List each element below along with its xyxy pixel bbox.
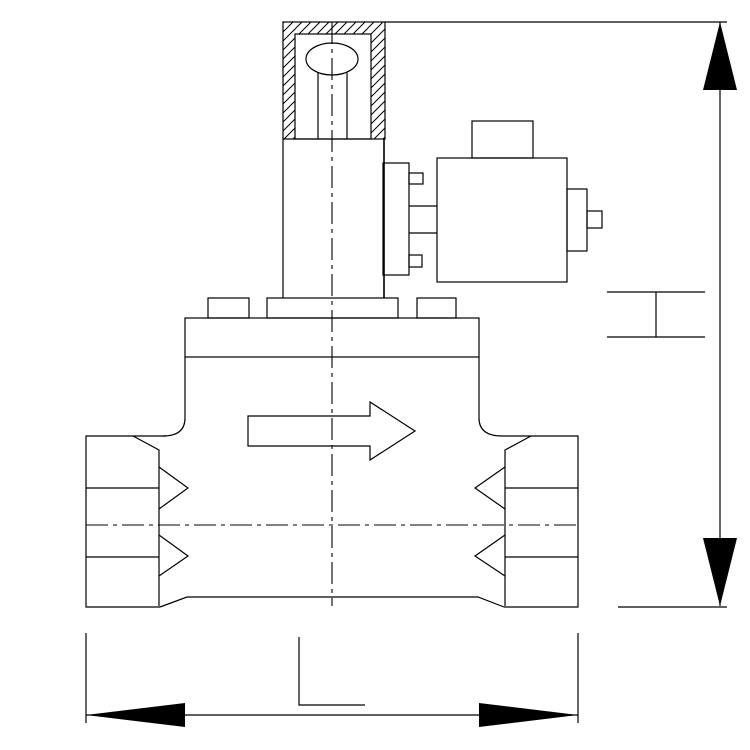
thread-chevron-top (159, 467, 188, 509)
top-gland-hatched-housing (283, 22, 385, 139)
arrowhead-down-icon (703, 538, 737, 606)
port-chamfer-and-face (133, 436, 159, 606)
centerlines (86, 22, 578, 606)
connector-gland-tab (587, 211, 602, 228)
coil-mounting-bracket (383, 163, 409, 275)
gland-inner-bore (295, 34, 371, 139)
hex-flat-lines (86, 488, 159, 557)
bolt-boss-right (417, 298, 456, 318)
arrowhead-right-icon (479, 703, 578, 727)
valve-drawing (0, 0, 750, 750)
bracket-tab-top (409, 173, 423, 184)
port-outline (502, 436, 578, 607)
cable-connector (567, 189, 587, 251)
arrowhead-left-icon (86, 703, 185, 727)
right-threaded-port (475, 436, 578, 607)
thread-chevron-top (475, 467, 505, 509)
body-side-left (163, 357, 185, 436)
thread-chevron-bottom (475, 535, 505, 576)
drawing-canvas (0, 0, 750, 750)
solenoid-coil-assembly (383, 121, 602, 282)
bolt-boss-left (208, 298, 249, 318)
thread-chevron-bottom (159, 535, 188, 576)
dimension-label-height (607, 292, 705, 337)
armature-tube-column (283, 139, 384, 298)
port-chamfer-and-face (505, 436, 531, 606)
bracket-tab-bottom (409, 255, 422, 267)
arrowhead-up-icon (703, 22, 737, 90)
coil-top-boss (472, 121, 533, 158)
coil-neck (409, 206, 437, 233)
body-side-right (479, 357, 502, 436)
dimension-label-length (299, 637, 365, 705)
hatch-fill (283, 22, 385, 139)
length-dimension (86, 633, 578, 727)
height-dimension (385, 22, 737, 607)
hex-flat-lines (505, 488, 578, 557)
port-outline (86, 436, 166, 607)
gland-outer-wall (283, 22, 385, 139)
left-threaded-port (86, 436, 188, 607)
coil-body (437, 158, 567, 282)
